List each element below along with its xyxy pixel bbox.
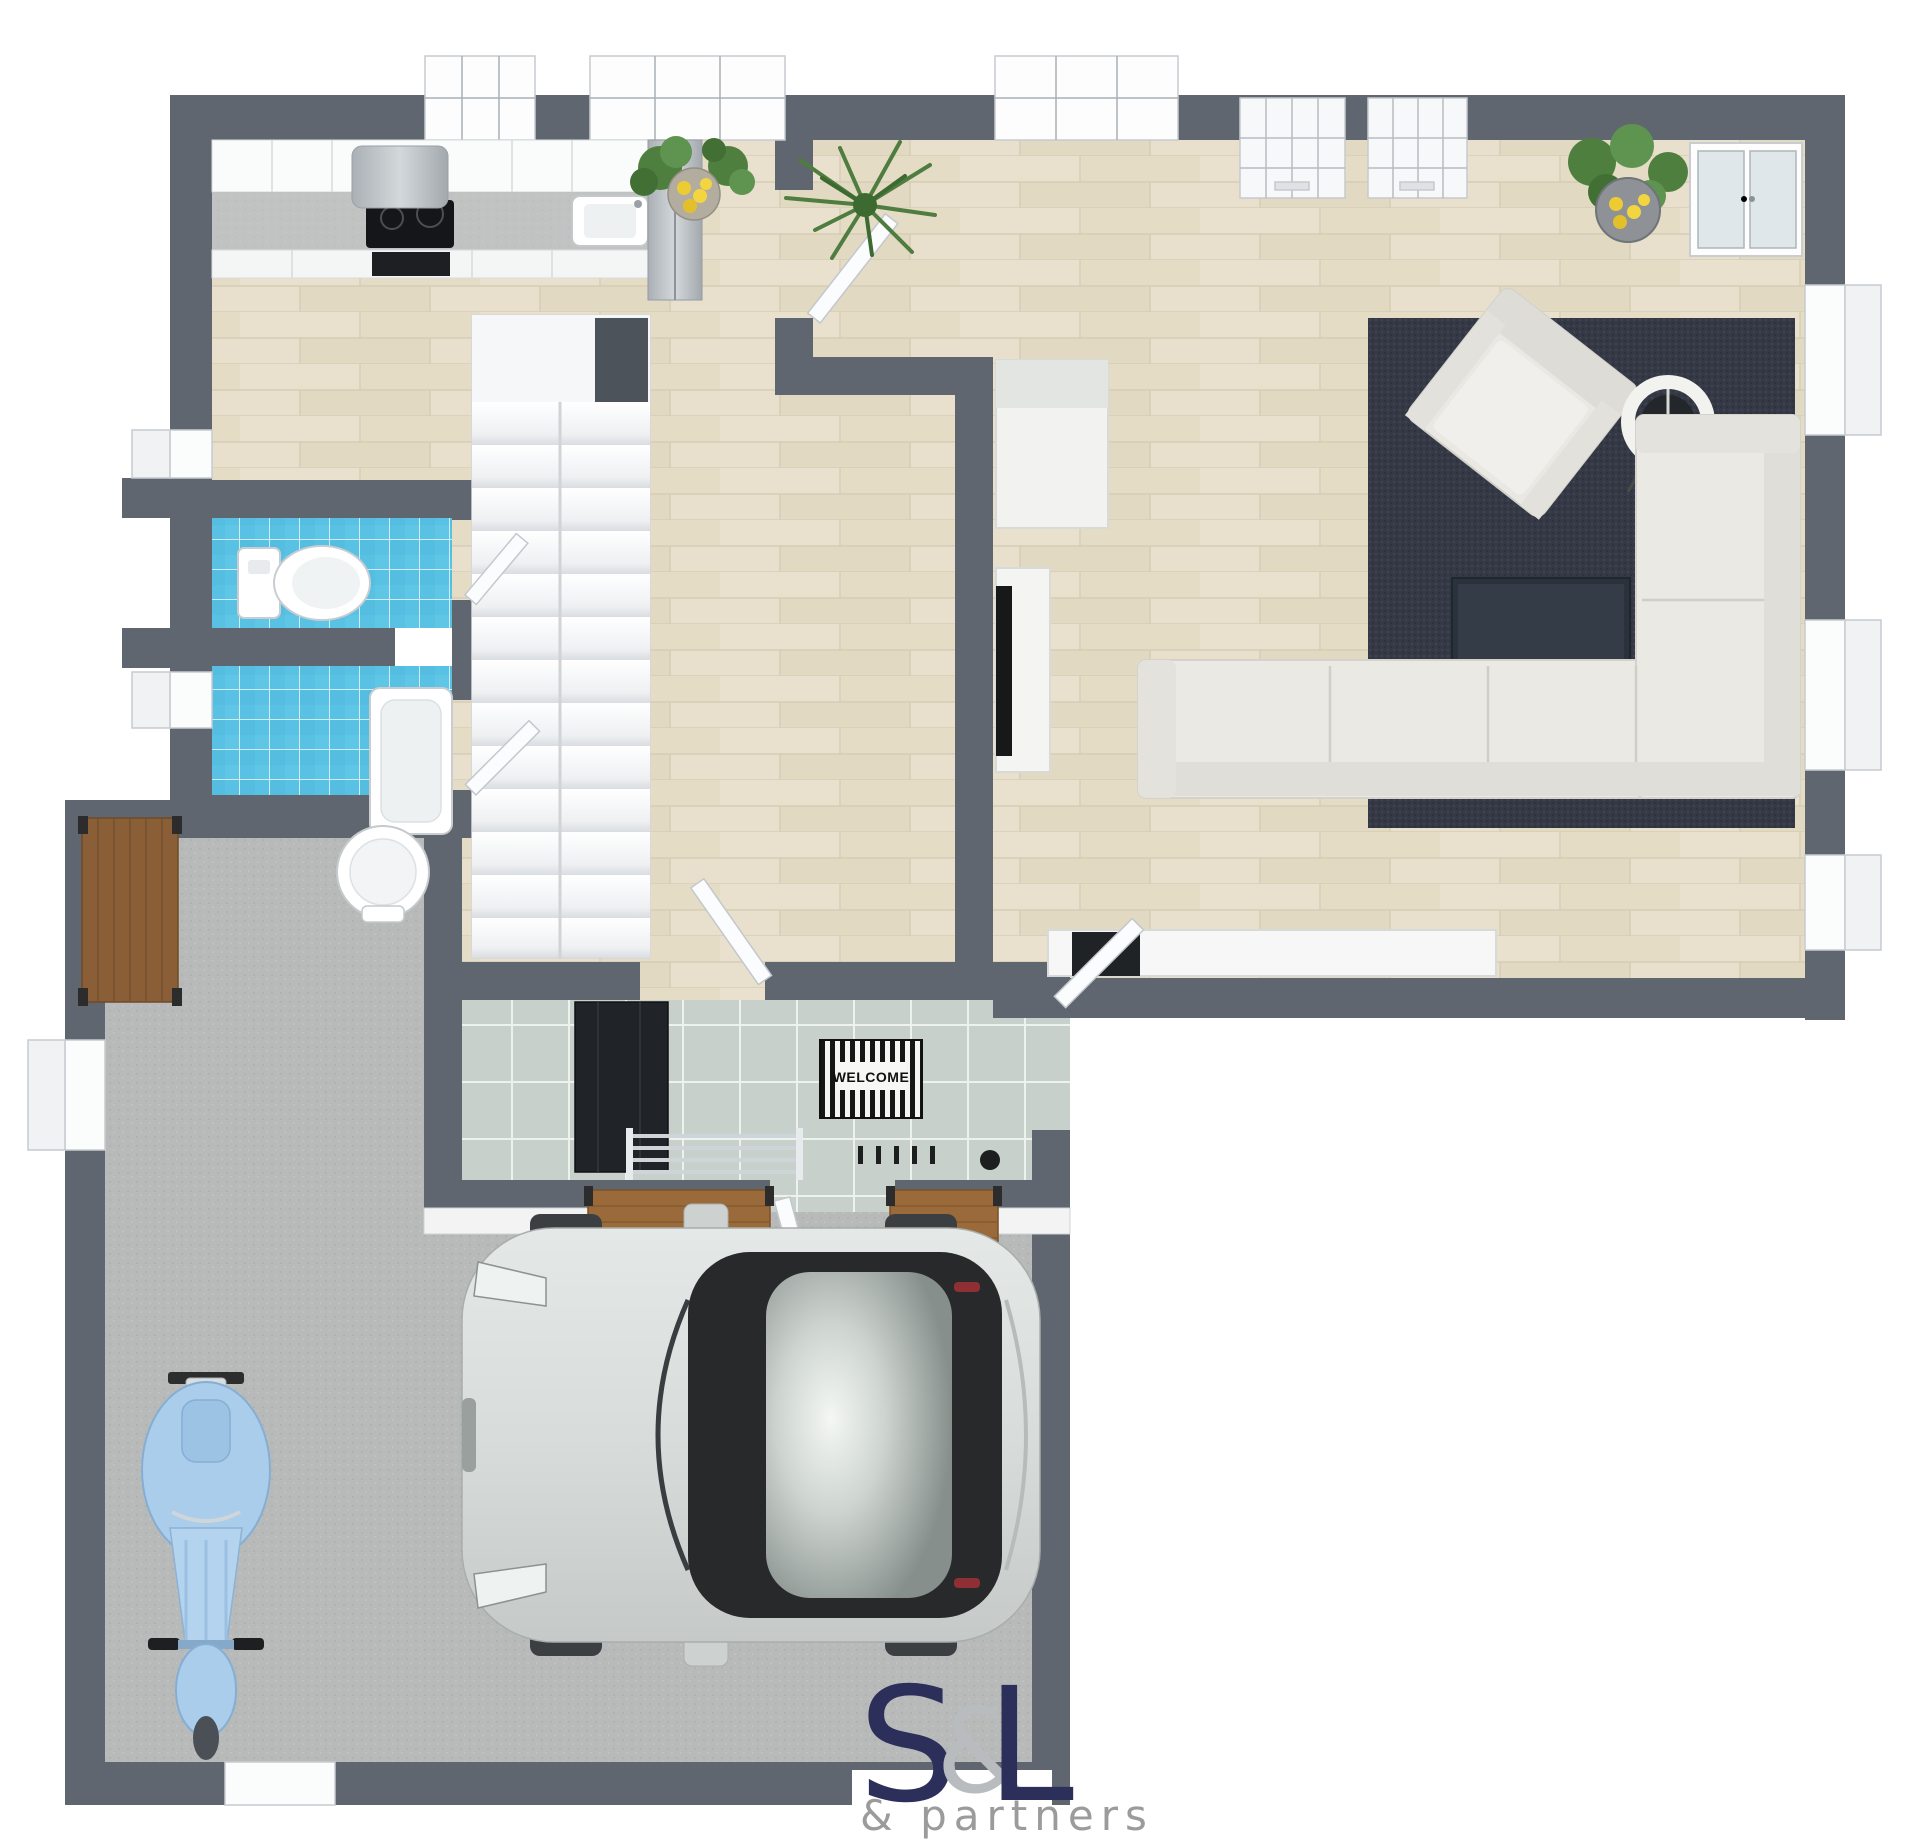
car-taillight-right (954, 1578, 980, 1588)
wall-hall-entry-b (765, 962, 1032, 1000)
kettlebell (980, 1150, 1000, 1170)
desk-shelf (996, 360, 1108, 408)
range-hood (352, 146, 448, 208)
garage-bottom-window (225, 1762, 335, 1805)
logo-tagline: & partners (860, 1791, 1154, 1840)
cabinet-glass-door-2 (1750, 151, 1796, 248)
stairwell-void (595, 318, 648, 402)
wall-stub-left-b (122, 628, 170, 668)
kitchen-faucet (634, 200, 642, 208)
bathtub-basin (381, 700, 441, 822)
living-window-2 (1368, 98, 1467, 198)
toilet-flush-button (248, 560, 270, 574)
garage-left-window (28, 1040, 105, 1150)
kitchen-top-window-2 (590, 56, 785, 140)
cabinet-handle-1 (1741, 196, 1747, 202)
toilet-seat (292, 557, 360, 609)
oven (372, 252, 450, 276)
kitchen-upper-cabinets (212, 140, 700, 192)
right-wall-window-3 (1805, 855, 1881, 950)
tv-screen (996, 586, 1012, 756)
corner-display-cabinet (1690, 143, 1802, 256)
desk (996, 360, 1108, 528)
living-top-window-box (995, 56, 1178, 140)
scooter-seat (182, 1400, 230, 1462)
workbench-left (78, 816, 182, 1006)
welcome-mat: WELCOME (820, 1040, 922, 1118)
staircase (472, 315, 650, 958)
right-wall-window-2 (1805, 620, 1881, 770)
kitchen-sink-basin (584, 204, 636, 238)
living-window-1 (1240, 98, 1345, 198)
bathroom (370, 688, 452, 834)
toilet (238, 546, 370, 620)
wall-living-bottom (1032, 978, 1845, 1018)
floorplan-svg: WELCOME (0, 0, 1920, 1841)
car (462, 1204, 1040, 1666)
cabinet-glass-door-1 (1698, 151, 1744, 248)
scooter-grip-left (148, 1638, 180, 1650)
wall-wc-top (170, 480, 490, 518)
bathtub (370, 688, 452, 834)
wall-stub-left-a (122, 478, 170, 518)
welcome-mat-text: WELCOME (833, 1069, 910, 1085)
scooter-front-wheel (193, 1716, 219, 1760)
cabinet-handle-2 (1749, 196, 1755, 202)
left-wall-window-2 (132, 672, 212, 728)
car-roof (766, 1272, 952, 1598)
sofa-backrest-right (1764, 420, 1800, 794)
floorplan-canvas: WELCOME (0, 0, 1920, 1841)
front-door-threshold (1032, 1005, 1070, 1130)
wall-wc-bath-divider-a (170, 628, 395, 666)
water-heater-handle (362, 906, 404, 922)
wall-hall-living (955, 357, 993, 978)
left-wall-window-1 (132, 430, 212, 478)
tv-unit (996, 568, 1050, 772)
kitchen (212, 140, 702, 300)
car-taillight-left (954, 1282, 980, 1292)
kitchen-base-cabinets (212, 250, 700, 278)
car-grille (462, 1398, 476, 1472)
sofa-backrest-bottom (1142, 762, 1798, 796)
sofa-armrest-top (1636, 415, 1800, 453)
wall-hall-entry-a (462, 962, 640, 1000)
wc-room (238, 546, 370, 620)
scooter-grip-right (232, 1638, 264, 1650)
wall-garage-entry-left (424, 838, 462, 1218)
sofa-armrest-left (1138, 660, 1176, 798)
right-wall-window-1 (1805, 285, 1881, 435)
coffee-table-glass (1458, 584, 1624, 668)
brand-watermark: S & L & partners (852, 1654, 1154, 1840)
entry-hall-floor (462, 1000, 1032, 1180)
kitchen-top-window-1 (425, 56, 535, 140)
